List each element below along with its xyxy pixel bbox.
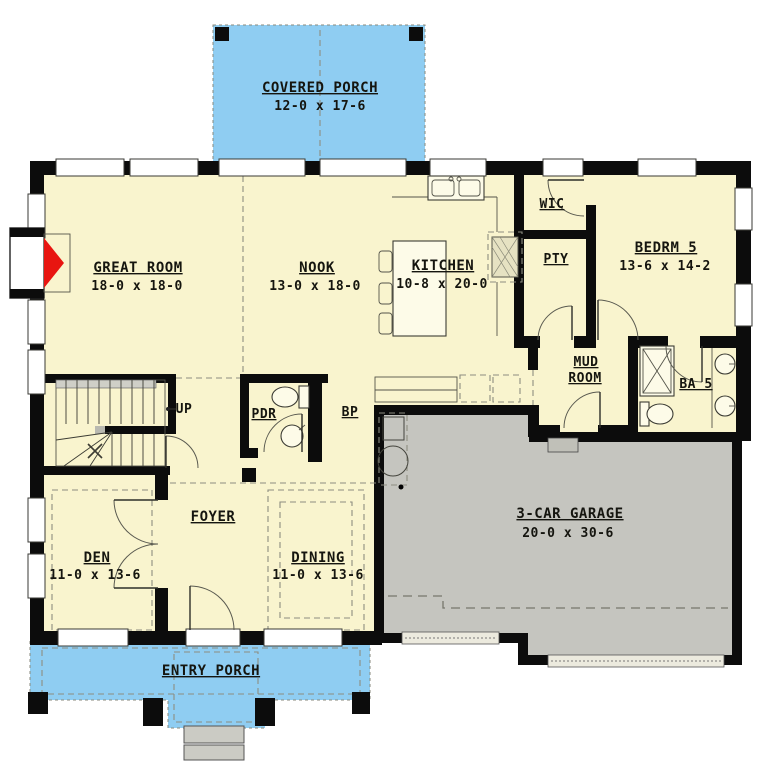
great-room-dims: 18-0 x 18-0	[91, 279, 183, 294]
porch-post-icon	[215, 27, 229, 41]
foyer-label: FOYER	[191, 509, 236, 525]
dining-label: DINING	[291, 550, 345, 566]
wall-den-foyer-lower	[155, 588, 168, 635]
mud-room-label-1: MUD	[574, 355, 599, 370]
wall-bed-hall-2	[574, 336, 596, 348]
garage-dims: 20-0 x 30-6	[522, 526, 614, 541]
kitchen-label: KITCHEN	[412, 258, 475, 274]
entry-porch-label: ENTRY PORCH	[162, 663, 260, 679]
porch-post-icon	[28, 692, 48, 714]
toilet-icon	[272, 387, 298, 407]
pantry-label: PTY	[544, 252, 569, 267]
window	[130, 159, 198, 176]
toilet-icon	[647, 404, 673, 424]
window	[430, 159, 486, 176]
window	[28, 350, 45, 394]
window	[264, 629, 342, 646]
window	[28, 498, 45, 542]
front-step	[184, 745, 244, 760]
wall-foyer-stub	[242, 468, 256, 482]
front-door-opening	[186, 629, 240, 646]
post-dot	[399, 485, 404, 490]
bath5-label: BA 5	[679, 377, 712, 392]
entry-porch-slab	[30, 640, 370, 728]
dining-dims: 11-0 x 13-6	[272, 568, 364, 583]
floor-plan: COVERED PORCH 12-0 x 17-6 GREAT ROOM 18-…	[0, 0, 775, 775]
porch-post-icon	[255, 698, 275, 726]
covered-porch-slab	[213, 25, 425, 168]
pedestal-sink-icon	[281, 425, 303, 447]
mud-room-label-2: ROOM	[568, 371, 601, 386]
window	[543, 159, 583, 176]
wall-bed-hall-1	[514, 336, 540, 348]
entry-porch	[28, 640, 370, 760]
porch-post-icon	[352, 692, 370, 714]
window	[219, 159, 305, 176]
kitchen-dims: 10-8 x 20-0	[396, 277, 488, 292]
wall-den-foyer-upper	[155, 466, 168, 500]
wic-label: WIC	[540, 197, 565, 212]
floor-plan-canvas: COVERED PORCH 12-0 x 17-6 GREAT ROOM 18-…	[0, 0, 775, 775]
wall-den-top	[44, 466, 170, 475]
window	[320, 159, 406, 176]
window	[735, 284, 752, 326]
bedroom5-label: BEDRM 5	[635, 240, 698, 256]
wall-bed-hall-4	[700, 336, 737, 348]
great-room-label: GREAT ROOM	[93, 260, 182, 276]
covered-porch	[213, 25, 425, 168]
stairs-up-label: UP	[176, 402, 193, 417]
covered-porch-dims: 12-0 x 17-6	[274, 99, 366, 114]
chimney-cap	[10, 228, 44, 237]
den-label: DEN	[84, 550, 111, 566]
wall-pdr-right	[308, 374, 322, 462]
nook-dims: 13-0 x 18-0	[269, 279, 361, 294]
porch-post-icon	[409, 27, 423, 41]
butlers-pantry-label: BP	[342, 405, 359, 420]
window	[58, 629, 128, 646]
wall-mud-ba5-divider	[628, 344, 638, 440]
powder-label: PDR	[252, 407, 277, 422]
window	[28, 554, 45, 598]
bedroom5-dims: 13-6 x 14-2	[619, 259, 711, 274]
porch-post-icon	[143, 698, 163, 726]
den-dims: 11-0 x 13-6	[49, 568, 141, 583]
wall-mud-left-stub	[528, 348, 538, 370]
wall-wic-right	[586, 205, 596, 346]
mudroom-stoop	[548, 438, 578, 452]
window	[56, 159, 124, 176]
nook-label: NOOK	[299, 260, 335, 276]
toilet-tank	[299, 386, 309, 408]
wall-mud-bottom-2	[598, 425, 628, 437]
wall-wic-pty-divider	[514, 230, 596, 239]
garage-label: 3-CAR GARAGE	[516, 506, 623, 522]
front-step	[184, 726, 244, 743]
wall-pdr-bottom	[240, 448, 258, 458]
stair-landing-edge	[56, 380, 156, 388]
wall-mud-left-stub2	[528, 405, 538, 430]
window	[735, 188, 752, 230]
window	[28, 300, 45, 344]
wall-pdr-left	[240, 374, 249, 458]
chimney-box	[10, 228, 44, 298]
up-leader-dot	[166, 407, 170, 411]
chimney-cap	[10, 289, 44, 298]
covered-porch-label: COVERED PORCH	[262, 80, 378, 96]
window	[638, 159, 696, 176]
